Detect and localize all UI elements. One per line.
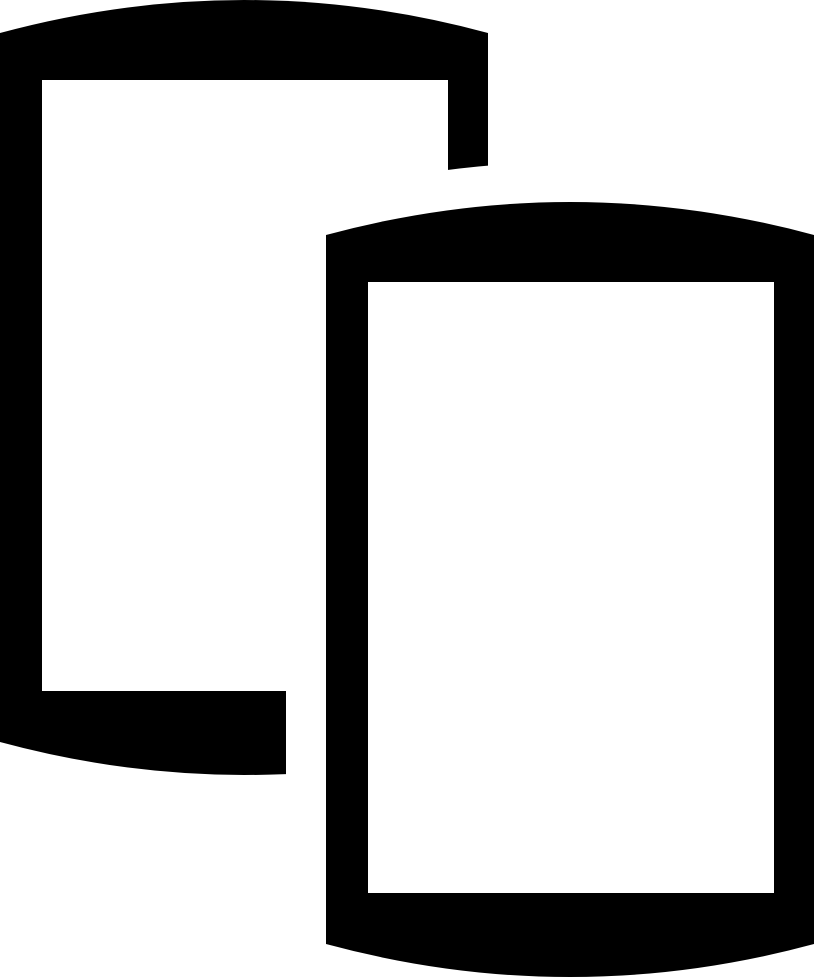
front-phone-icon bbox=[326, 202, 814, 977]
stacked-phones-icon bbox=[0, 0, 814, 980]
front-phone-screen bbox=[368, 282, 774, 893]
icon-canvas bbox=[0, 0, 814, 980]
